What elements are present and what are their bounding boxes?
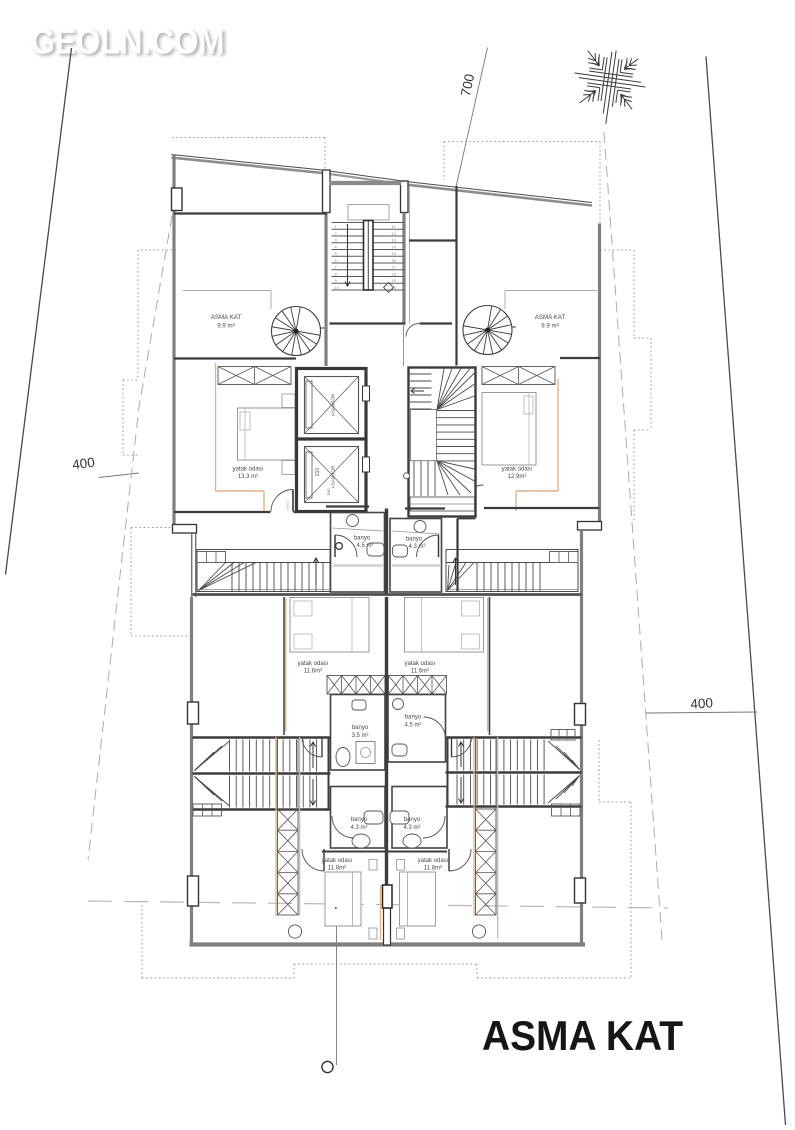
svg-text:400: 400 (71, 455, 95, 473)
svg-text:ASMA KAT: ASMA KAT (535, 314, 566, 321)
svg-text:banyo: banyo (404, 817, 421, 823)
svg-text:ASMA KAT: ASMA KAT (211, 314, 242, 321)
svg-text:15: 15 (392, 251, 397, 256)
svg-text:yatak odası: yatak odası (405, 661, 436, 667)
svg-text:12.9m²: 12.9m² (508, 474, 527, 480)
svg-text:9.9 m²: 9.9 m² (217, 323, 235, 330)
svg-text:banyo: banyo (406, 537, 423, 543)
svg-text:210: 210 (315, 468, 321, 477)
svg-text:banyo: banyo (354, 536, 371, 542)
svg-text:4.5 m²: 4.5 m² (356, 543, 373, 549)
svg-text:ASANSÖR: ASANSÖR (330, 393, 336, 416)
svg-text:ASANSÖR: ASANSÖR (330, 465, 336, 488)
svg-text:yatak odası: yatak odası (298, 661, 329, 667)
svg-text:GEOLN.COM: GEOLN.COM (31, 23, 225, 62)
svg-text:banyo: banyo (405, 715, 422, 721)
svg-text:banyo: banyo (351, 817, 368, 823)
svg-text:11.6m²: 11.6m² (411, 669, 429, 675)
svg-text:4.5 m²: 4.5 m² (404, 723, 421, 729)
svg-text:9.9 m²: 9.9 m² (541, 323, 559, 330)
svg-text:10: 10 (335, 285, 340, 290)
svg-text:3.5 m²: 3.5 m² (351, 733, 368, 739)
svg-text:banyo: banyo (352, 725, 369, 731)
svg-text:18: 18 (392, 271, 397, 276)
svg-text:4.3 m²: 4.3 m² (350, 825, 367, 831)
svg-text:ASMA KAT: ASMA KAT (482, 1012, 683, 1059)
svg-text:19: 19 (392, 278, 397, 283)
svg-text:14: 14 (392, 244, 397, 249)
svg-text:13: 13 (392, 238, 397, 243)
svg-text:12: 12 (392, 231, 397, 236)
svg-text:yatak odası: yatak odası (322, 858, 353, 864)
svg-text:17: 17 (392, 265, 397, 270)
svg-text:11.8m²: 11.8m² (328, 866, 346, 872)
svg-text:13.3 m²: 13.3 m² (238, 474, 258, 480)
svg-text:yatak odası: yatak odası (502, 467, 533, 473)
svg-text:11.6m²: 11.6m² (304, 669, 322, 675)
svg-text:4.3 m²: 4.3 m² (403, 825, 420, 831)
svg-text:4.3 m²: 4.3 m² (408, 544, 425, 550)
svg-text:190: 190 (326, 488, 331, 495)
svg-text:16: 16 (392, 258, 397, 263)
svg-text:yatak odası: yatak odası (418, 858, 449, 864)
svg-text:80/220: 80/220 (286, 500, 290, 510)
svg-text:400: 400 (690, 695, 714, 712)
svg-text:11.8m²: 11.8m² (424, 866, 442, 872)
svg-text:yatak odası: yatak odası (233, 467, 264, 473)
